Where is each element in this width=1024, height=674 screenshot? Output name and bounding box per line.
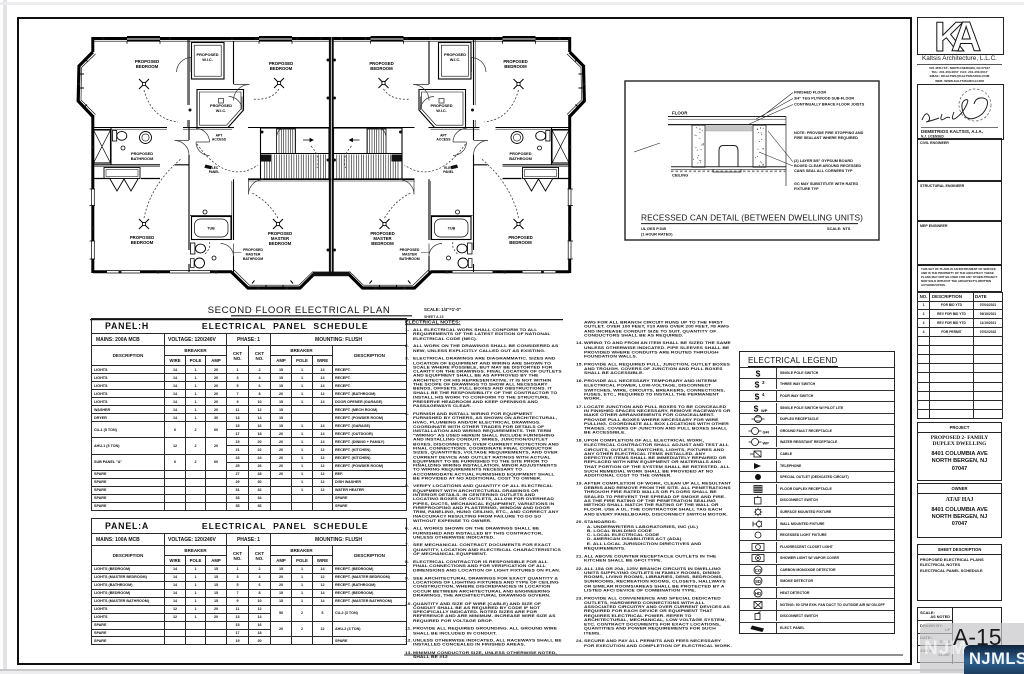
svg-text:W.I.C.: W.I.C. [202, 57, 213, 62]
svg-text:CEILING: CEILING [672, 173, 688, 178]
svg-text:BEDROOM: BEDROOM [504, 64, 527, 69]
svg-text:$: $ [755, 380, 760, 390]
svg-text:TUB: TUB [207, 227, 215, 231]
svg-text:SHEET A-15: SHEET A-15 [424, 315, 444, 319]
svg-text:TUB: TUB [448, 227, 456, 231]
svg-text:BATHROOM: BATHROOM [399, 257, 419, 261]
svg-text:WP: WP [763, 441, 770, 446]
svg-text:W.I.C.: W.I.C. [216, 108, 227, 113]
svg-text:W.I.C.: W.I.C. [436, 108, 447, 113]
svg-text:WP: WP [761, 408, 768, 413]
svg-text:RECESSED CAN DETAIL (BETWEEN D: RECESSED CAN DETAIL (BETWEEN DWELLING UN… [641, 213, 863, 223]
svg-text:$: $ [756, 368, 761, 378]
svg-text:$: $ [755, 391, 760, 401]
svg-text:PROPOSED: PROPOSED [243, 248, 263, 252]
svg-text:SECOND FLOOR ELECTRICAL PLAN: SECOND FLOOR ELECTRICAL PLAN [208, 305, 391, 316]
svg-text:DEMETRIOS KALTSIS, A.I.A.: DEMETRIOS KALTSIS, A.I.A. [921, 129, 983, 134]
svg-text:PROPOSED: PROPOSED [400, 248, 420, 252]
svg-text:BEDROOM: BEDROOM [370, 66, 393, 71]
svg-text:MASTER: MASTER [402, 253, 417, 257]
svg-text:BEDROOM: BEDROOM [509, 240, 532, 245]
svg-text:CANS SEAL ALL CORNERS TYP: CANS SEAL ALL CORNERS TYP [794, 169, 853, 173]
svg-text:GC MAY SUBSTITUTE WITH RATED: GC MAY SUBSTITUTE WITH RATED [794, 182, 859, 186]
svg-text:PANEL: PANEL [209, 170, 220, 174]
svg-text:NOTE: PROVIDE FIRE STOPPING AN: NOTE: PROVIDE FIRE STOPPING AND [794, 131, 864, 135]
svg-text:CONTINUALLY BRACE FLOOR JOISTS: CONTINUALLY BRACE FLOOR JOISTS [794, 103, 865, 107]
svg-text:FIXTURE TYP: FIXTURE TYP [794, 187, 819, 191]
svg-text:BEDROOM: BEDROOM [269, 241, 292, 246]
svg-text:HD: HD [755, 591, 761, 596]
svg-text:PANEL: PANEL [443, 170, 454, 174]
svg-text:BOXED CLEAR AROUND RECESSED: BOXED CLEAR AROUND RECESSED [794, 164, 861, 168]
svg-text:(2) LAYER 5/8" GYPSUM BOARD: (2) LAYER 5/8" GYPSUM BOARD [794, 159, 853, 163]
svg-text:BATHROOM: BATHROOM [243, 257, 263, 261]
svg-text:GFI: GFI [763, 429, 770, 434]
svg-text:FIRE SEALANT WHERE REQUIRED: FIRE SEALANT WHERE REQUIRED [794, 136, 858, 140]
svg-text:FLOOR: FLOOR [672, 111, 688, 116]
svg-text:CO: CO [755, 568, 762, 573]
svg-text:3/4" T&G PLYWOOD SUB-FLOOR: 3/4" T&G PLYWOOD SUB-FLOOR [794, 97, 854, 101]
svg-text:(1 HOUR RATED): (1 HOUR RATED) [641, 232, 673, 237]
svg-text:A: A [951, 18, 981, 54]
svg-text:SCALE: NTS: SCALE: NTS [827, 226, 851, 231]
svg-text:UL DES P.545: UL DES P.545 [641, 226, 667, 231]
svg-text:BEDROOM: BEDROOM [136, 64, 159, 69]
svg-text:SD: SD [755, 579, 761, 584]
svg-text:MASTER: MASTER [246, 253, 261, 257]
svg-text:SCALE: 1/4"=1'-0": SCALE: 1/4"=1'-0" [424, 307, 461, 312]
svg-text:BATHROOM: BATHROOM [131, 156, 154, 161]
svg-text:ACCESS: ACCESS [212, 138, 227, 142]
svg-text:FINISHED FLOOR: FINISHED FLOOR [794, 91, 826, 95]
svg-text:ACCESS: ACCESS [436, 138, 451, 142]
svg-text:4: 4 [762, 392, 765, 397]
svg-text:BEDROOM: BEDROOM [371, 241, 394, 246]
svg-text:BATHROOM: BATHROOM [509, 156, 532, 161]
svg-text:W.I.C.: W.I.C. [450, 57, 461, 62]
svg-text:3: 3 [762, 380, 765, 385]
svg-text:BEDROOM: BEDROOM [270, 66, 293, 71]
svg-text:BEDROOM: BEDROOM [131, 240, 154, 245]
svg-text:$: $ [754, 403, 759, 413]
